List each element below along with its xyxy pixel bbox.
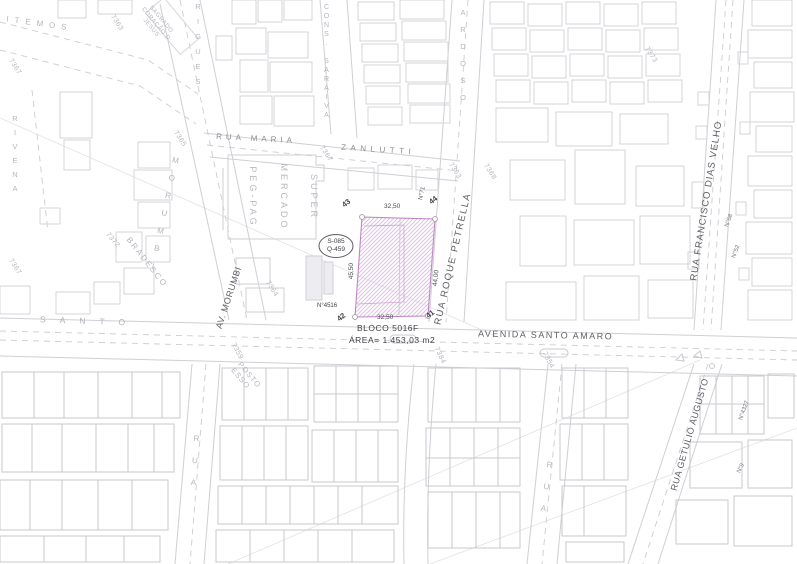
street-label-rivena: RIVENA — [11, 114, 19, 198]
cadastral-map-stage: ITEMOS RIGUES SAGRADO CORAÇÃO D JESUS RI… — [0, 0, 797, 564]
buildings-east-column — [736, 0, 794, 320]
sector-reference-label: S-085 Q-459 — [318, 238, 354, 253]
lot-area-label: ÁREA= 1.453,03 m2 — [349, 336, 435, 345]
buildings-top-right — [490, 2, 709, 320]
lot-dim-bottom: 32,50 — [377, 315, 393, 322]
lot-dim-left: 45,50 — [349, 263, 356, 279]
lot-dim-top: 32,50 — [384, 204, 400, 211]
street-label-cardoso: ARDOSO — [459, 8, 467, 110]
supermarket-label: SUPER MERCADO PEG-PAG — [237, 151, 329, 243]
buildings-bottom — [0, 335, 794, 562]
lot-block-label: BLOCO 5016F — [357, 324, 419, 333]
lot-number-west: N°4516 — [317, 303, 337, 309]
street-label-rodrigues: RIGUES — [194, 2, 202, 92]
street-label-cons-saraiva: CONS. SARAIVA — [323, 4, 330, 121]
